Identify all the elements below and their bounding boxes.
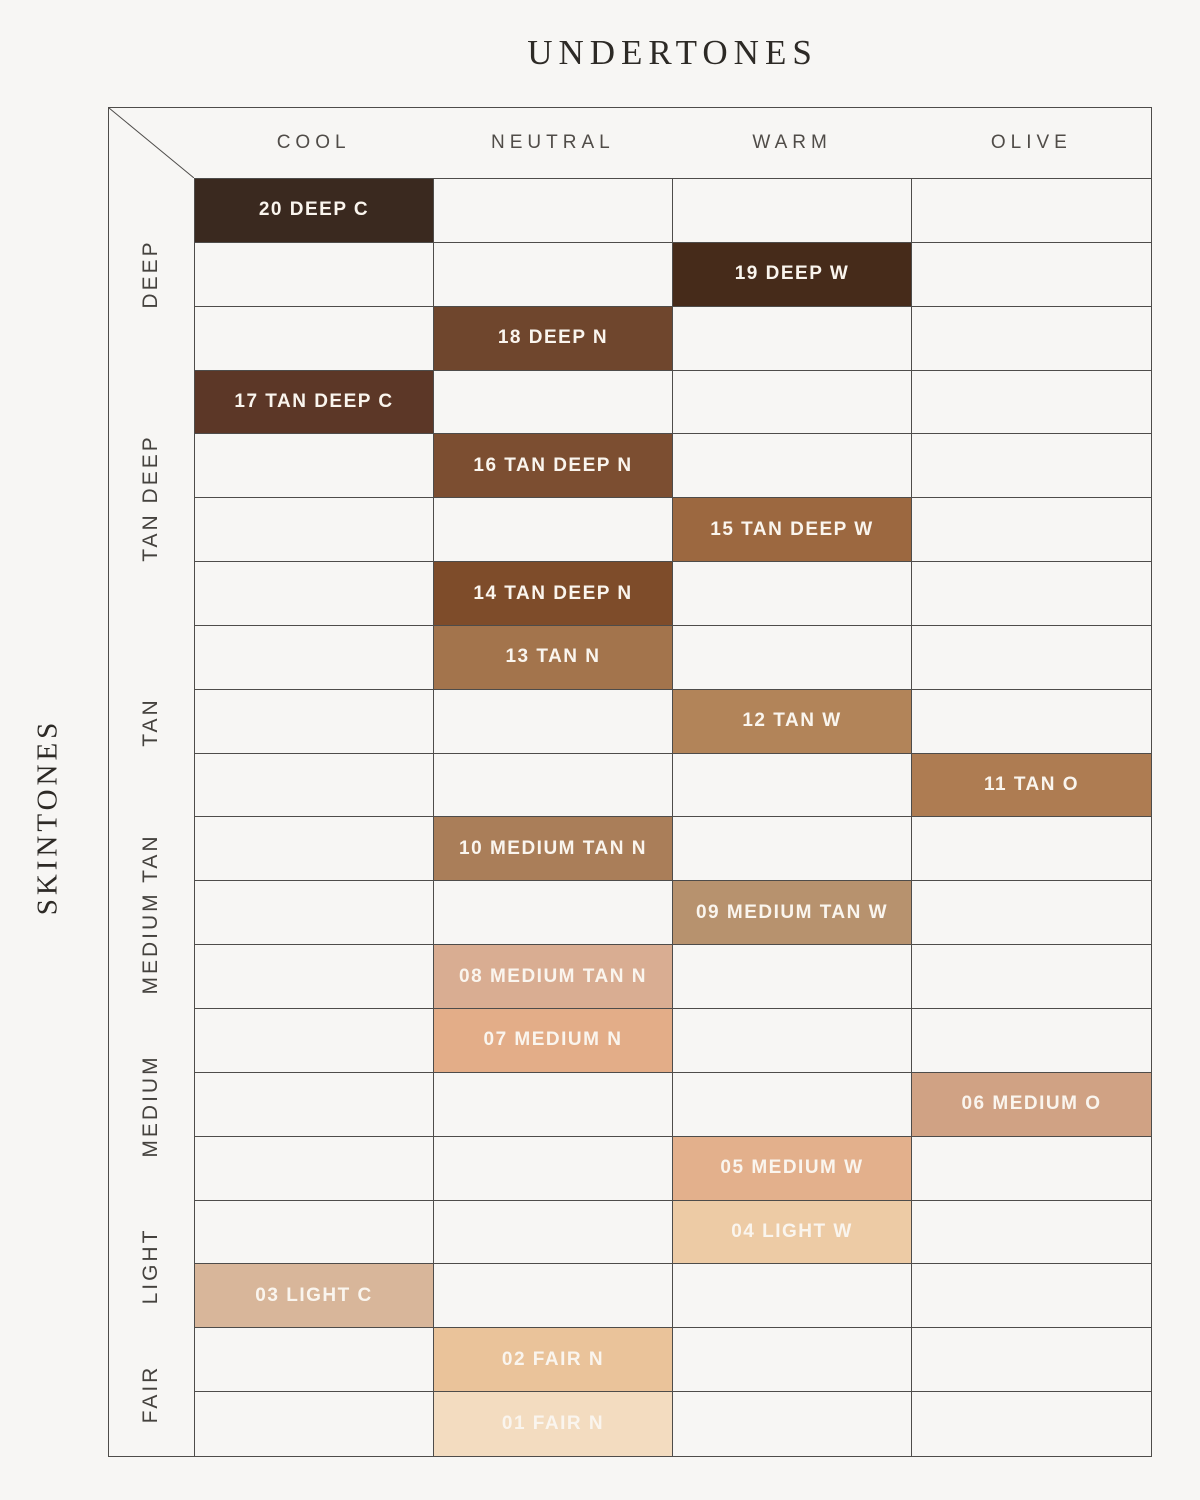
empty-cell [912, 881, 1151, 945]
empty-cell [912, 243, 1151, 307]
empty-cell [673, 371, 912, 435]
shade-cell: 20 DEEP C [195, 179, 434, 243]
empty-cell [195, 1392, 434, 1456]
shade-cell: 17 TAN DEEP C [195, 371, 434, 435]
empty-cell [195, 1201, 434, 1265]
empty-cell [912, 179, 1151, 243]
empty-cell [195, 690, 434, 754]
skintone-group-label: TAN DEEP [139, 434, 163, 561]
skintone-group-label: FAIR [139, 1365, 163, 1424]
empty-cell [673, 179, 912, 243]
undertone-header-neutral: NEUTRAL [433, 108, 672, 178]
empty-cell [673, 626, 912, 690]
shade-cell: 11 TAN O [912, 754, 1151, 818]
empty-cell [434, 1137, 673, 1201]
undertone-header-warm: WARM [673, 108, 912, 178]
empty-cell [912, 945, 1151, 1009]
shade-cell: 12 TAN W [673, 690, 912, 754]
shade-cell: 07 MEDIUM N [434, 1009, 673, 1073]
empty-cell [195, 754, 434, 818]
empty-cell [912, 1137, 1151, 1201]
empty-cell [195, 626, 434, 690]
empty-cell [673, 1073, 912, 1137]
shade-cell: 01 FAIR N [434, 1392, 673, 1456]
empty-cell [434, 243, 673, 307]
empty-cell [195, 1009, 434, 1073]
shade-cell: 10 MEDIUM TAN N [434, 817, 673, 881]
undertone-header-row: COOL NEUTRAL WARM OLIVE [194, 108, 1151, 178]
empty-cell [673, 307, 912, 371]
undertone-header-olive: OLIVE [912, 108, 1151, 178]
empty-cell [434, 754, 673, 818]
empty-cell [673, 817, 912, 881]
empty-cell [195, 498, 434, 562]
empty-cell [195, 307, 434, 371]
chart-title-undertones: UNDERTONES [193, 33, 1152, 73]
empty-cell [912, 1392, 1151, 1456]
skintone-group-label: DEEP [139, 239, 163, 308]
skintone-group-label: MEDIUM TAN [139, 833, 163, 994]
shade-cell: 05 MEDIUM W [673, 1137, 912, 1201]
side-label-skintones: SKINTONES [32, 719, 65, 916]
skintone-group-label: LIGHT [139, 1228, 163, 1305]
shade-cell: 13 TAN N [434, 626, 673, 690]
skintone-group-label: TAN [139, 697, 163, 746]
empty-cell [673, 754, 912, 818]
empty-cell [912, 307, 1151, 371]
grid-body: 20 DEEP C19 DEEP W18 DEEP N17 TAN DEEP C… [194, 178, 1151, 1456]
empty-cell [195, 434, 434, 498]
empty-cell [195, 562, 434, 626]
shade-cell: 14 TAN DEEP N [434, 562, 673, 626]
empty-cell [195, 881, 434, 945]
shade-cell: 02 FAIR N [434, 1328, 673, 1392]
shade-cell: 19 DEEP W [673, 243, 912, 307]
undertone-header-cool: COOL [194, 108, 433, 178]
foundation-shade-chart: UNDERTONES SKINTONES COOL NEUTRAL WARM O… [0, 0, 1200, 1500]
empty-cell [673, 1264, 912, 1328]
shade-cell: 09 MEDIUM TAN W [673, 881, 912, 945]
empty-cell [912, 434, 1151, 498]
empty-cell [912, 371, 1151, 435]
empty-cell [673, 945, 912, 1009]
empty-cell [912, 1328, 1151, 1392]
empty-cell [912, 817, 1151, 881]
empty-cell [195, 1073, 434, 1137]
empty-cell [673, 1009, 912, 1073]
diagonal-divider [109, 108, 194, 178]
shade-cell: 04 LIGHT W [673, 1201, 912, 1265]
empty-cell [673, 562, 912, 626]
empty-cell [673, 1392, 912, 1456]
shade-cell: 18 DEEP N [434, 307, 673, 371]
empty-cell [912, 498, 1151, 562]
empty-cell [195, 1328, 434, 1392]
empty-cell [912, 1201, 1151, 1265]
empty-cell [434, 498, 673, 562]
empty-cell [912, 626, 1151, 690]
empty-cell [434, 371, 673, 435]
shade-cell: 03 LIGHT C [195, 1264, 434, 1328]
empty-cell [673, 1328, 912, 1392]
empty-cell [434, 690, 673, 754]
empty-cell [673, 434, 912, 498]
skintone-group-label: MEDIUM [139, 1054, 163, 1157]
shade-cell: 06 MEDIUM O [912, 1073, 1151, 1137]
empty-cell [912, 562, 1151, 626]
shade-cell: 15 TAN DEEP W [673, 498, 912, 562]
empty-cell [912, 1264, 1151, 1328]
empty-cell [434, 1073, 673, 1137]
empty-cell [195, 817, 434, 881]
empty-cell [912, 1009, 1151, 1073]
empty-cell [434, 881, 673, 945]
shade-cell: 08 MEDIUM TAN N [434, 945, 673, 1009]
shade-cell: 16 TAN DEEP N [434, 434, 673, 498]
empty-cell [195, 1137, 434, 1201]
shade-grid: COOL NEUTRAL WARM OLIVE 20 DEEP C19 DEEP… [108, 107, 1152, 1457]
empty-cell [434, 179, 673, 243]
empty-cell [195, 243, 434, 307]
empty-cell [434, 1201, 673, 1265]
empty-cell [195, 945, 434, 1009]
empty-cell [434, 1264, 673, 1328]
empty-cell [912, 690, 1151, 754]
